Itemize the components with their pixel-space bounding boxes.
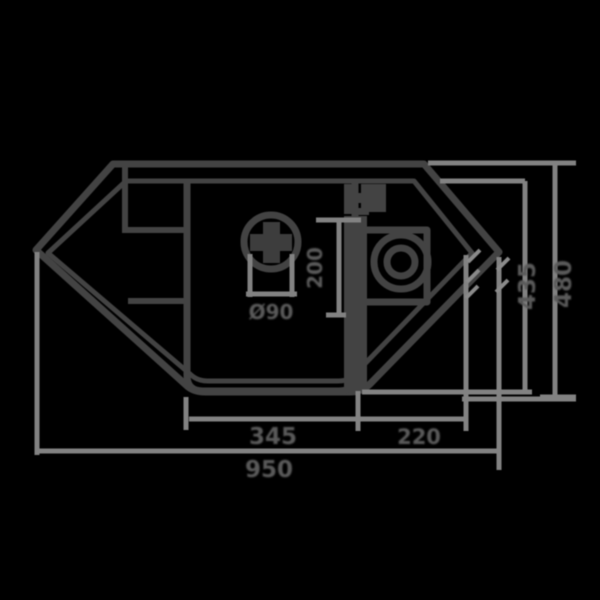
label-inner-depth: 435 <box>515 262 541 310</box>
sink-technical-drawing: 345 220 950 Ø90 480 435 200 <box>0 0 600 600</box>
bowl-divider <box>344 216 367 389</box>
drawing-canvas: 345 220 950 Ø90 480 435 200 <box>0 0 600 600</box>
label-bottom-bowl-width: 345 <box>249 424 297 450</box>
label-right-bowl-size: 200 <box>303 247 327 289</box>
label-drain-diameter: Ø90 <box>249 300 294 324</box>
label-bottom-right-width: 220 <box>397 425 441 449</box>
label-overall-width: 950 <box>245 457 293 483</box>
faucet-hole-mark <box>344 184 386 215</box>
label-overall-depth: 480 <box>551 260 577 308</box>
